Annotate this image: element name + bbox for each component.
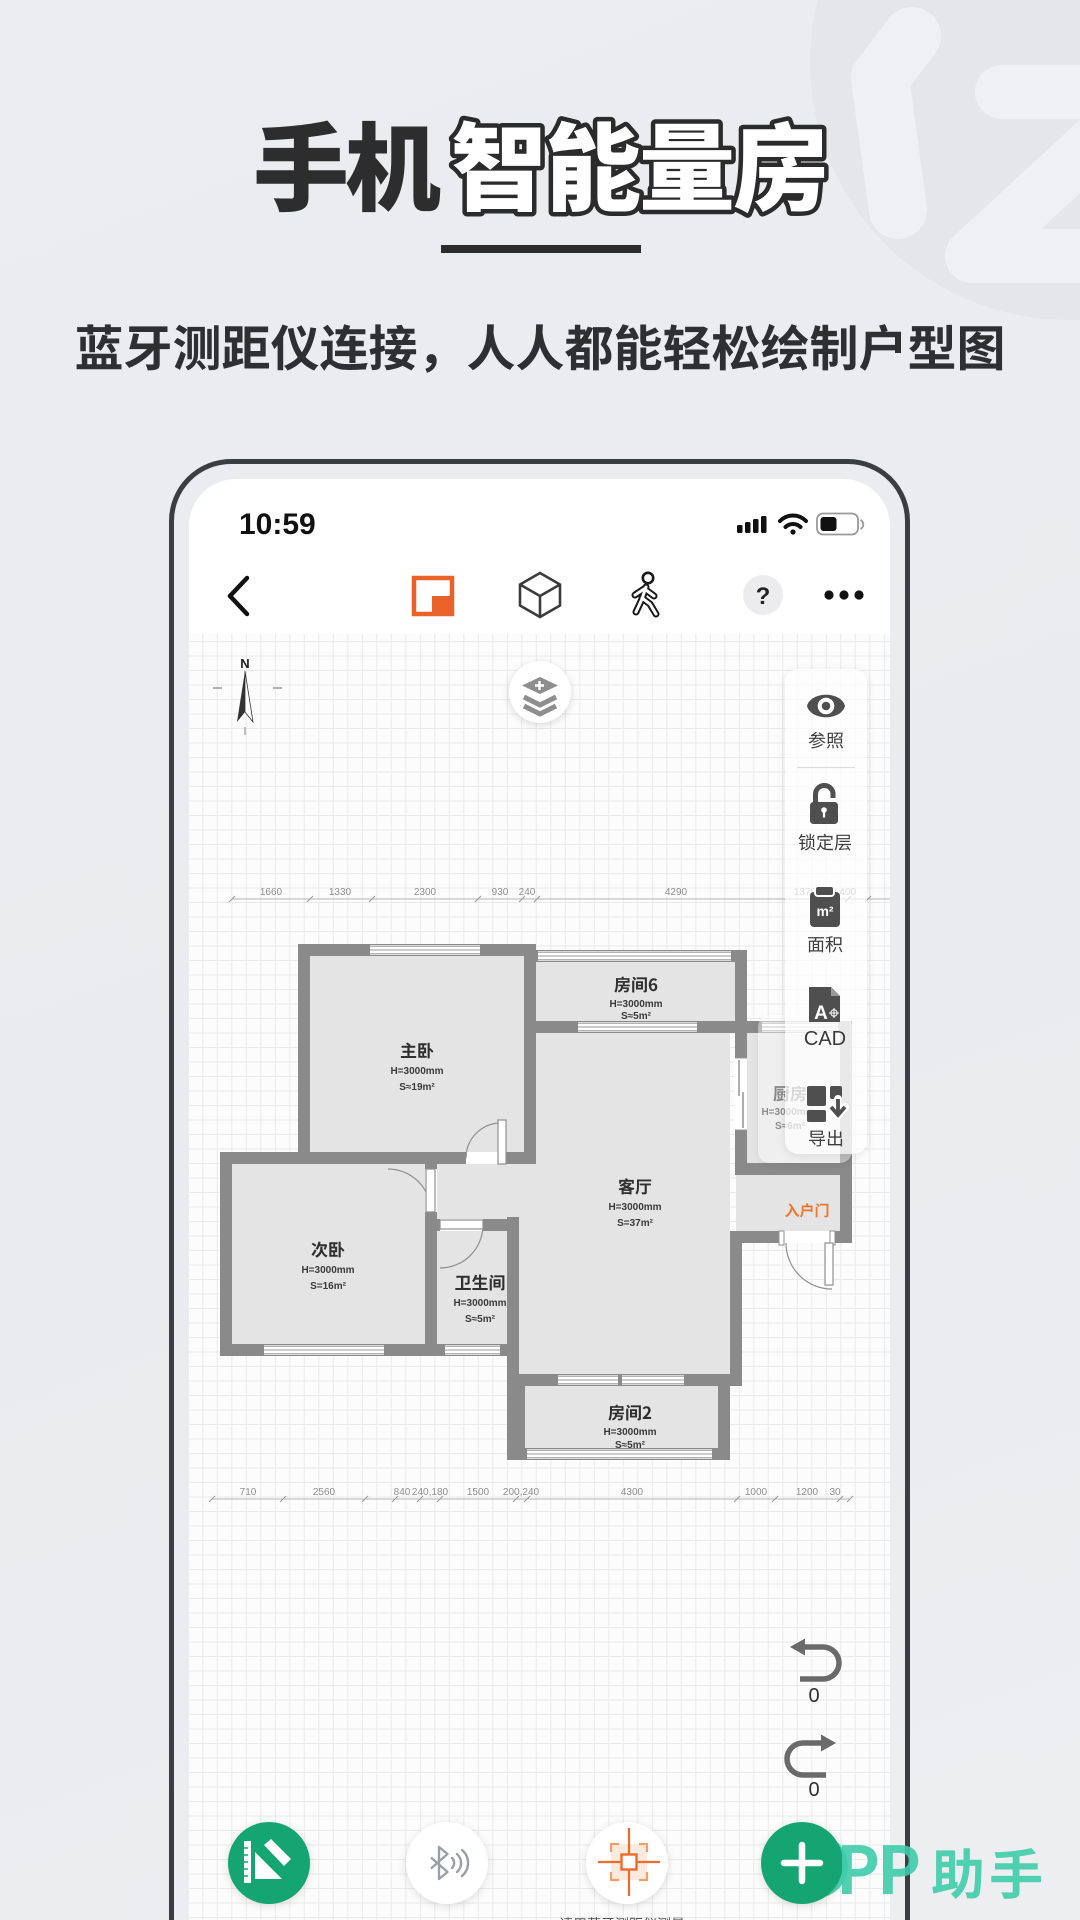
svg-text:200,240: 200,240 <box>503 1487 540 1498</box>
svg-text:1330: 1330 <box>329 887 352 898</box>
svg-text:N: N <box>240 656 249 671</box>
svg-text:H=3000mm: H=3000mm <box>453 1298 506 1309</box>
svg-text:H=3000mm: H=3000mm <box>603 1427 656 1438</box>
svg-text:30: 30 <box>829 1487 841 1498</box>
svg-text:240: 240 <box>519 887 536 898</box>
svg-text:?: ? <box>756 583 771 610</box>
svg-text:S≈5m²: S≈5m² <box>465 1314 496 1325</box>
svg-text:4290: 4290 <box>665 887 688 898</box>
svg-text:2560: 2560 <box>313 1487 336 1498</box>
svg-text:240,180: 240,180 <box>412 1487 449 1498</box>
svg-text:1500: 1500 <box>467 1487 490 1498</box>
svg-text:0: 0 <box>808 1685 819 1707</box>
svg-text:S≈5m²: S≈5m² <box>621 1011 652 1022</box>
svg-text:710: 710 <box>240 1487 257 1498</box>
svg-text:S≈19m²: S≈19m² <box>399 1082 435 1093</box>
svg-text:H=3000mm: H=3000mm <box>301 1265 354 1276</box>
svg-text:H=3000mm: H=3000mm <box>390 1066 443 1077</box>
svg-text:930: 930 <box>492 887 509 898</box>
svg-text:840: 840 <box>394 1487 411 1498</box>
svg-text:10:59: 10:59 <box>239 508 316 541</box>
svg-text:S=37m²: S=37m² <box>617 1218 654 1229</box>
svg-text:1660: 1660 <box>260 887 283 898</box>
svg-text:H=3000mm: H=3000mm <box>609 999 662 1010</box>
svg-text:1000: 1000 <box>745 1487 768 1498</box>
svg-text:2300: 2300 <box>414 887 437 898</box>
svg-text:m²: m² <box>816 903 833 919</box>
svg-text:CAD: CAD <box>804 1028 846 1050</box>
svg-text:A: A <box>814 1003 828 1024</box>
svg-text:H=3000mm: H=3000mm <box>608 1202 661 1213</box>
svg-text:1200: 1200 <box>796 1487 819 1498</box>
svg-text:S=16m²: S=16m² <box>310 1281 347 1292</box>
svg-text:S≈5m²: S≈5m² <box>615 1440 646 1451</box>
svg-text:4300: 4300 <box>621 1487 644 1498</box>
